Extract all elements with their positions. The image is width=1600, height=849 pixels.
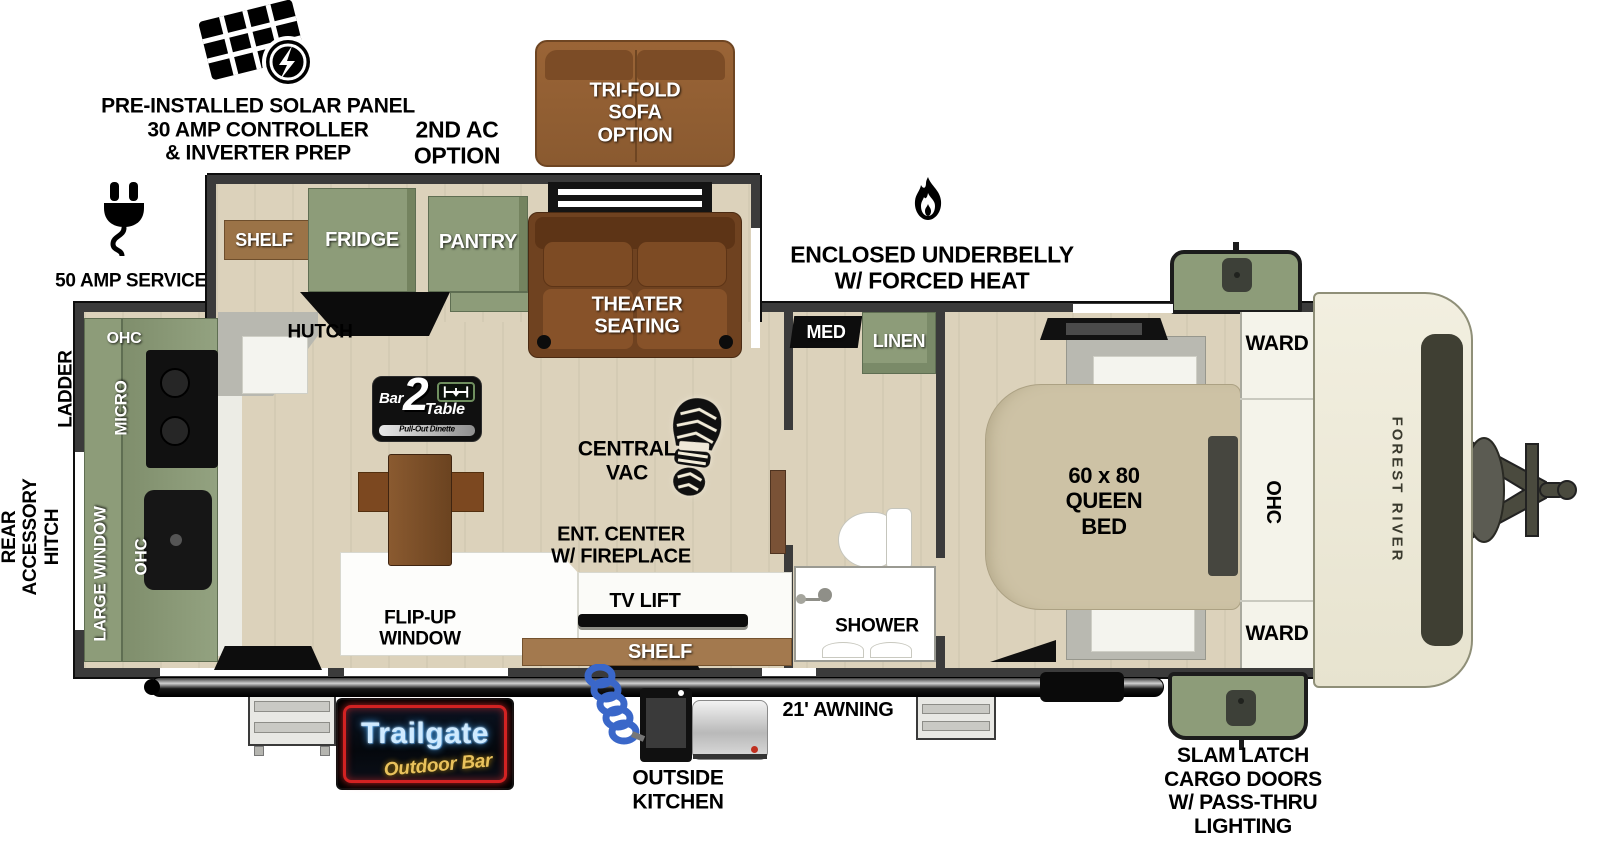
kitchen-large-window-label: LARGE WINDOW — [90, 506, 109, 641]
kitchen-ohc-top-label: OHC — [107, 330, 142, 348]
outside-kitchen-tank — [692, 700, 768, 760]
latch-dot — [1238, 698, 1244, 704]
forest-river-logo: FOREST RIVER — [1388, 417, 1405, 564]
hutch-counter — [242, 336, 308, 394]
badge-sub-label: Pull-Out Dinette — [399, 426, 455, 435]
dinette-table — [388, 454, 452, 566]
showerhead-icon — [818, 588, 832, 602]
sofa-back-cushion — [637, 50, 725, 80]
med-label: MED — [806, 322, 845, 342]
step — [922, 721, 990, 731]
bedroom-tv — [1208, 436, 1238, 576]
kitchen-sink — [144, 490, 212, 590]
slam-latch-callout: SLAM LATCH CARGO DOORS W/ PASS-THRU LIGH… — [1164, 744, 1322, 838]
bath-wall-right — [936, 312, 945, 558]
central-vac-label: CENTRAL VAC — [578, 437, 676, 484]
pull-out-dinette-icon — [437, 382, 475, 402]
hutch-label: HUTCH — [288, 321, 353, 342]
solar-callout: PRE-INSTALLED SOLAR PANEL 30 AMP CONTROL… — [101, 95, 415, 166]
shelf-label: SHELF — [235, 230, 293, 250]
nightstand-bottom — [1091, 608, 1195, 652]
showerhead-valve — [796, 594, 806, 604]
bottom-window — [214, 646, 322, 670]
dinette-badge: Bar 2 Table Pull-Out Dinette — [372, 376, 482, 442]
rear-wall-window — [75, 452, 84, 630]
sofa-cushion — [637, 241, 727, 287]
roof-vent — [1040, 318, 1168, 340]
griddle-knob — [678, 690, 684, 696]
shelf-bottom-label: SHELF — [628, 641, 692, 663]
latch-dot — [1234, 272, 1240, 278]
amp-service-callout: 50 AMP SERVICE — [55, 270, 207, 291]
bottom-wall-window-slot — [762, 668, 816, 676]
solar-panel-icon — [196, 0, 326, 96]
step — [254, 701, 330, 712]
outside-kitchen-callout: OUTSIDE KITCHEN — [632, 766, 723, 813]
shower-bench — [870, 642, 912, 658]
front-cap-window — [1421, 334, 1463, 646]
linen-label: LINEN — [873, 331, 926, 351]
awning-motor — [1040, 672, 1124, 702]
bath-door — [770, 470, 786, 554]
awning-callout: 21' AWNING — [782, 699, 893, 721]
tank-valve — [751, 746, 758, 753]
cargo-door-bottom-latch — [1226, 690, 1256, 726]
rear-hitch-callout: REAR ACCESSORY HITCH — [0, 479, 63, 596]
pantry-counter — [450, 292, 530, 312]
theater-label: THEATER SEATING — [592, 294, 683, 339]
cargo-door-top-latch — [1222, 258, 1252, 292]
burner — [160, 416, 190, 446]
cargo-door-top-stem — [1233, 242, 1239, 252]
flip-up-window-label: FLIP-UP WINDOW — [379, 608, 461, 651]
flame-icon — [905, 176, 951, 230]
second-ac-callout: 2ND AC OPTION — [414, 117, 500, 169]
tri-fold-sofa-label: TRI-FOLD SOFA OPTION — [590, 79, 681, 146]
nightstand-top — [1093, 356, 1197, 386]
cupholder — [719, 335, 733, 349]
bottom-wall-window-slot — [344, 668, 508, 676]
faucet — [170, 534, 182, 546]
griddle-top — [646, 698, 686, 748]
rv-floorplan: PRE-INSTALLED SOLAR PANEL 30 AMP CONTROL… — [0, 0, 1600, 849]
bath-wall-right-lower — [936, 636, 945, 668]
ward-bottom-label: WARD — [1246, 622, 1309, 646]
cupholder — [537, 335, 551, 349]
kitchen-ohc-bottom-label: OHC — [131, 539, 150, 576]
tank-base — [693, 754, 767, 759]
slide-window — [548, 182, 712, 214]
wardrobe-divider — [1240, 398, 1313, 400]
badge-bar-word: Bar — [379, 391, 403, 408]
slide-side-window — [751, 228, 760, 348]
fridge-label: FRIDGE — [325, 229, 399, 251]
window-pane — [558, 201, 702, 207]
vent-inner — [1066, 323, 1142, 335]
bedroom-ohc-label: OHC — [1262, 480, 1284, 524]
trailgate-sign: Trailgate Outdoor Bar — [338, 700, 512, 788]
shower-bench — [822, 642, 864, 658]
toilet-tank — [886, 508, 912, 570]
kitchen-micro-label: MICRO — [111, 380, 130, 435]
tv-lift-tv — [578, 614, 748, 627]
sofa-cushion — [543, 241, 633, 287]
badge-band: Pull-Out Dinette — [379, 425, 475, 436]
burner — [160, 368, 190, 398]
step — [254, 722, 330, 733]
bedroom-top-window-slot — [1073, 304, 1173, 313]
badge-table-word: Table — [425, 401, 465, 419]
underbelly-callout: ENCLOSED UNDERBELLY W/ FORCED HEAT — [790, 242, 1074, 294]
window-pane — [558, 189, 702, 195]
awning-end-cap — [144, 679, 160, 695]
step — [922, 704, 990, 714]
wardrobe-divider — [1240, 600, 1313, 602]
shower-pan — [794, 566, 936, 662]
tv-lift-label: TV LIFT — [609, 590, 680, 612]
entry-steps — [248, 690, 336, 746]
stove-cooktop — [146, 350, 218, 468]
step-foot — [254, 746, 264, 756]
ent-center-label: ENT. CENTER W/ FIREPLACE — [551, 524, 691, 569]
sofa-back-cushion — [545, 50, 633, 80]
queen-bed-label: 60 x 80 QUEEN BED — [1066, 463, 1143, 539]
trailgate-title: Trailgate — [361, 717, 489, 751]
tongue-jack — [1466, 420, 1578, 560]
shower-label: SHOWER — [835, 615, 919, 636]
ward-top-label: WARD — [1246, 332, 1309, 356]
pantry-label: PANTRY — [439, 231, 517, 253]
coiled-hose-icon — [580, 664, 650, 750]
step-foot — [320, 746, 330, 756]
power-plug-icon — [100, 182, 148, 256]
